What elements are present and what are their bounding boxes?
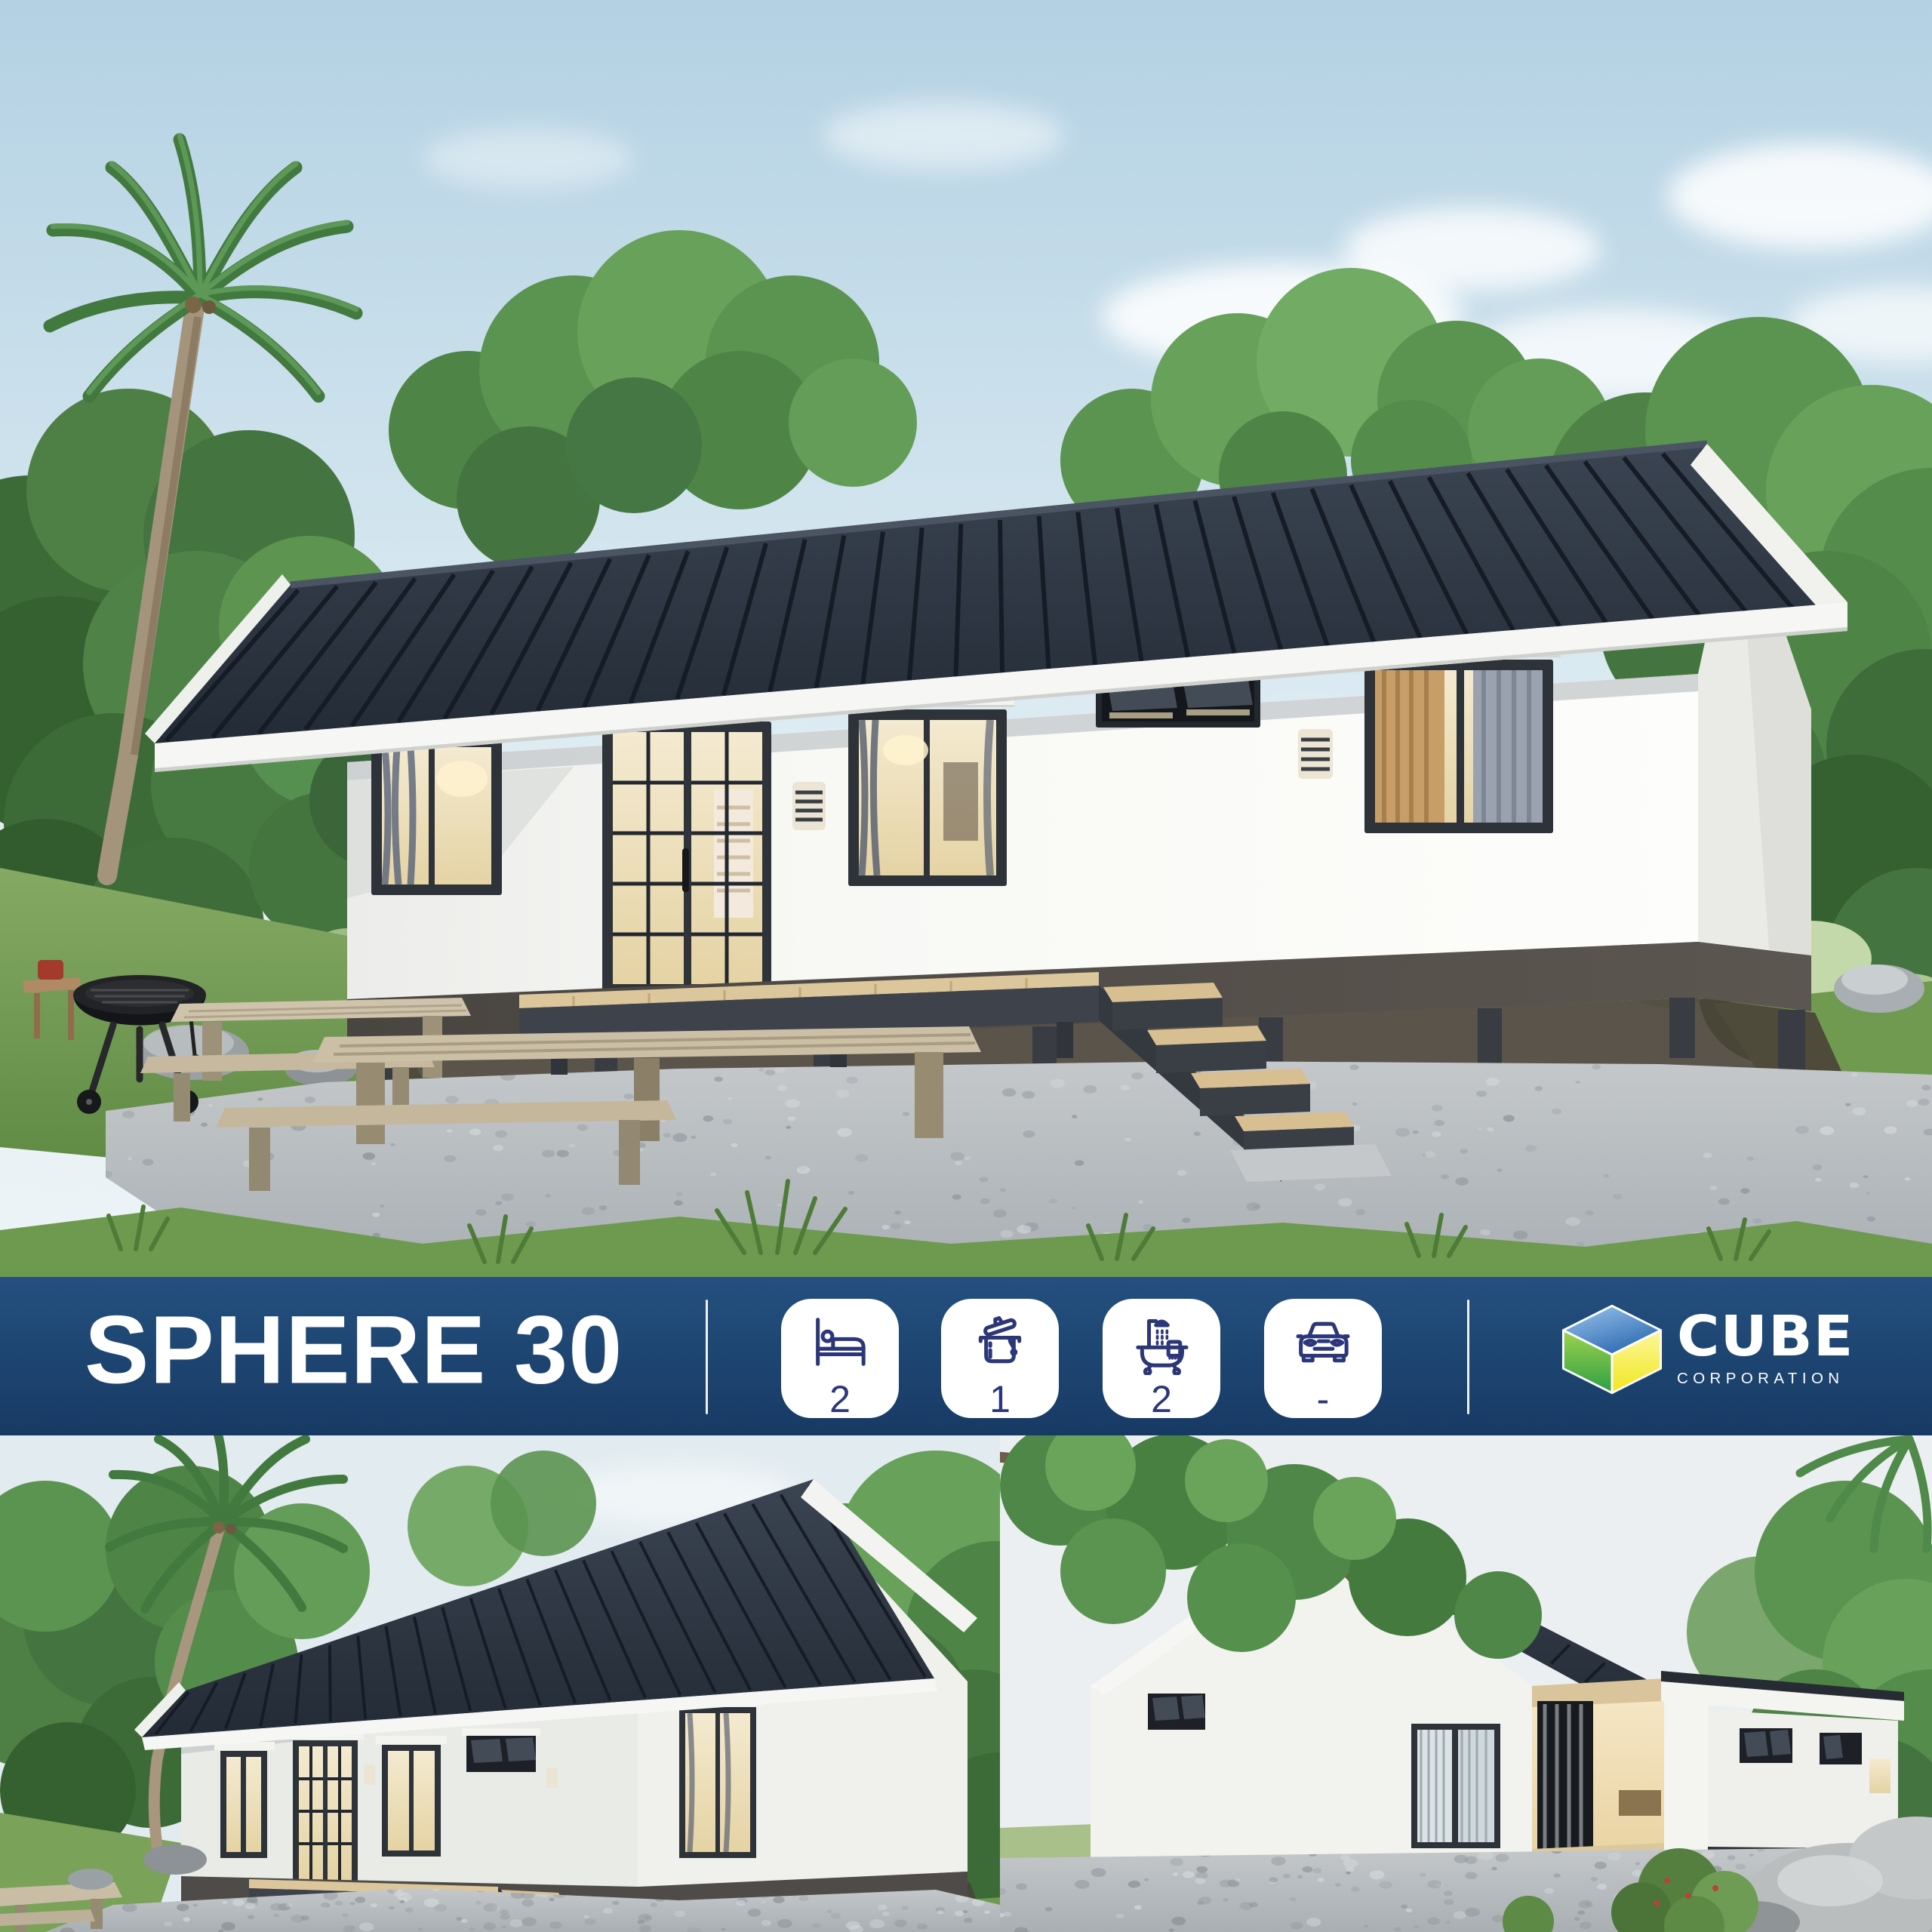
spec-tile-parking: -	[1264, 1299, 1382, 1418]
spec-tile-bathrooms: 2	[1103, 1299, 1220, 1418]
spec-value-kitchen: 1	[989, 1380, 1011, 1418]
model-name: SPHERE 30	[85, 1294, 623, 1405]
brand-name: CUBE	[1677, 1311, 1854, 1362]
secondary-render-left	[0, 1435, 1000, 1932]
spec-banner: SPHERE 30 2	[0, 1277, 1932, 1435]
wall-sconce	[792, 782, 826, 830]
divider	[1467, 1300, 1469, 1414]
secondary-render-right	[1000, 1435, 1932, 1932]
awning-window	[1820, 1733, 1862, 1764]
window-center	[839, 694, 1014, 886]
wall-sconce	[546, 1767, 558, 1788]
grille-door	[1537, 1701, 1593, 1852]
hero-render	[0, 0, 1932, 1277]
front-door	[593, 705, 779, 995]
front-door	[287, 1731, 364, 1887]
spec-tile-kitchen: 1	[941, 1299, 1059, 1418]
wall-sconce	[1298, 729, 1333, 779]
cube-logo-icon	[1559, 1304, 1665, 1395]
spec-value-parking: -	[1317, 1380, 1330, 1418]
porch-column	[1664, 1678, 1708, 1858]
brand-subtitle: CORPORATION	[1677, 1370, 1847, 1388]
bed-icon	[802, 1308, 878, 1376]
wall-sconce	[364, 1764, 375, 1785]
porch	[1532, 1678, 1664, 1864]
awning-window	[1740, 1728, 1792, 1763]
gable-window	[673, 1698, 762, 1858]
divider	[706, 1300, 708, 1414]
awning-window	[1148, 1694, 1205, 1730]
window-blinds	[1411, 1724, 1500, 1848]
spec-value-bathrooms: 2	[1151, 1380, 1172, 1418]
brand-logo: CUBE CORPORATION	[1559, 1304, 1847, 1395]
window-small	[214, 1742, 275, 1858]
poster: SPHERE 30 2	[0, 0, 1932, 1932]
window-center	[376, 1736, 447, 1857]
car-icon	[1285, 1308, 1361, 1376]
bathtub-icon	[1124, 1308, 1199, 1376]
awning-window	[462, 1728, 540, 1772]
cooking-pot-icon	[962, 1308, 1038, 1376]
spec-value-bedrooms: 2	[829, 1380, 851, 1418]
lit-slot-window	[1869, 1758, 1890, 1793]
spec-tile-bedrooms: 2	[781, 1299, 899, 1418]
window-right	[1355, 645, 1561, 833]
